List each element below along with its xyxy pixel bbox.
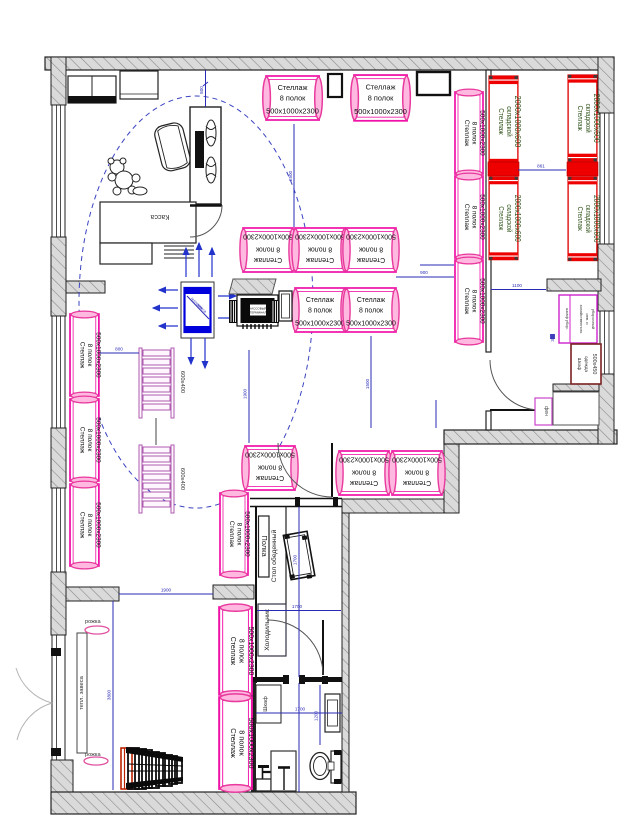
svg-text:Касса: Касса <box>150 213 169 220</box>
svg-text:1700: 1700 <box>295 707 306 712</box>
svg-text:шкаф убор.: шкаф убор. <box>565 308 570 330</box>
svg-text:уборочный: уборочный <box>591 309 596 329</box>
svg-text:Холодильник: Холодильник <box>264 609 271 651</box>
svg-text:900: 900 <box>420 270 428 275</box>
svg-text:рожка: рожка <box>85 619 101 625</box>
svg-text:800: 800 <box>115 347 123 352</box>
svg-text:1100: 1100 <box>512 283 522 288</box>
svg-text:600х400: 600х400 <box>179 468 185 490</box>
svg-text:Шкаф: Шкаф <box>577 358 582 371</box>
svg-text:Полка: Полка <box>260 535 269 557</box>
svg-text:фен: фен <box>543 406 549 416</box>
svg-text:ТЕРМИНАЛ: ТЕРМИНАЛ <box>250 311 267 315</box>
svg-text:1900: 1900 <box>161 588 172 593</box>
svg-text:2500: 2500 <box>288 170 293 181</box>
svg-text:одежда: одежда <box>584 356 589 372</box>
svg-text:хозяйственного: хозяйственного <box>579 305 584 335</box>
svg-text:3800: 3800 <box>107 689 112 700</box>
svg-text:инв. и: инв. и <box>585 313 590 324</box>
svg-text:1700: 1700 <box>293 554 298 565</box>
svg-text:1900: 1900 <box>243 388 248 399</box>
svg-text:1200: 1200 <box>314 710 319 721</box>
svg-text:861: 861 <box>537 164 545 169</box>
svg-text:Шкаф: Шкаф <box>263 696 269 712</box>
svg-text:Стол обеденный: Стол обеденный <box>270 530 278 583</box>
svg-text:500х450: 500х450 <box>591 354 597 375</box>
svg-text:тепл. завеса: тепл. завеса <box>79 675 85 710</box>
svg-text:800: 800 <box>199 86 204 94</box>
svg-text:1700: 1700 <box>292 604 303 609</box>
svg-text:1500: 1500 <box>365 378 370 389</box>
svg-text:600х400: 600х400 <box>179 371 185 393</box>
